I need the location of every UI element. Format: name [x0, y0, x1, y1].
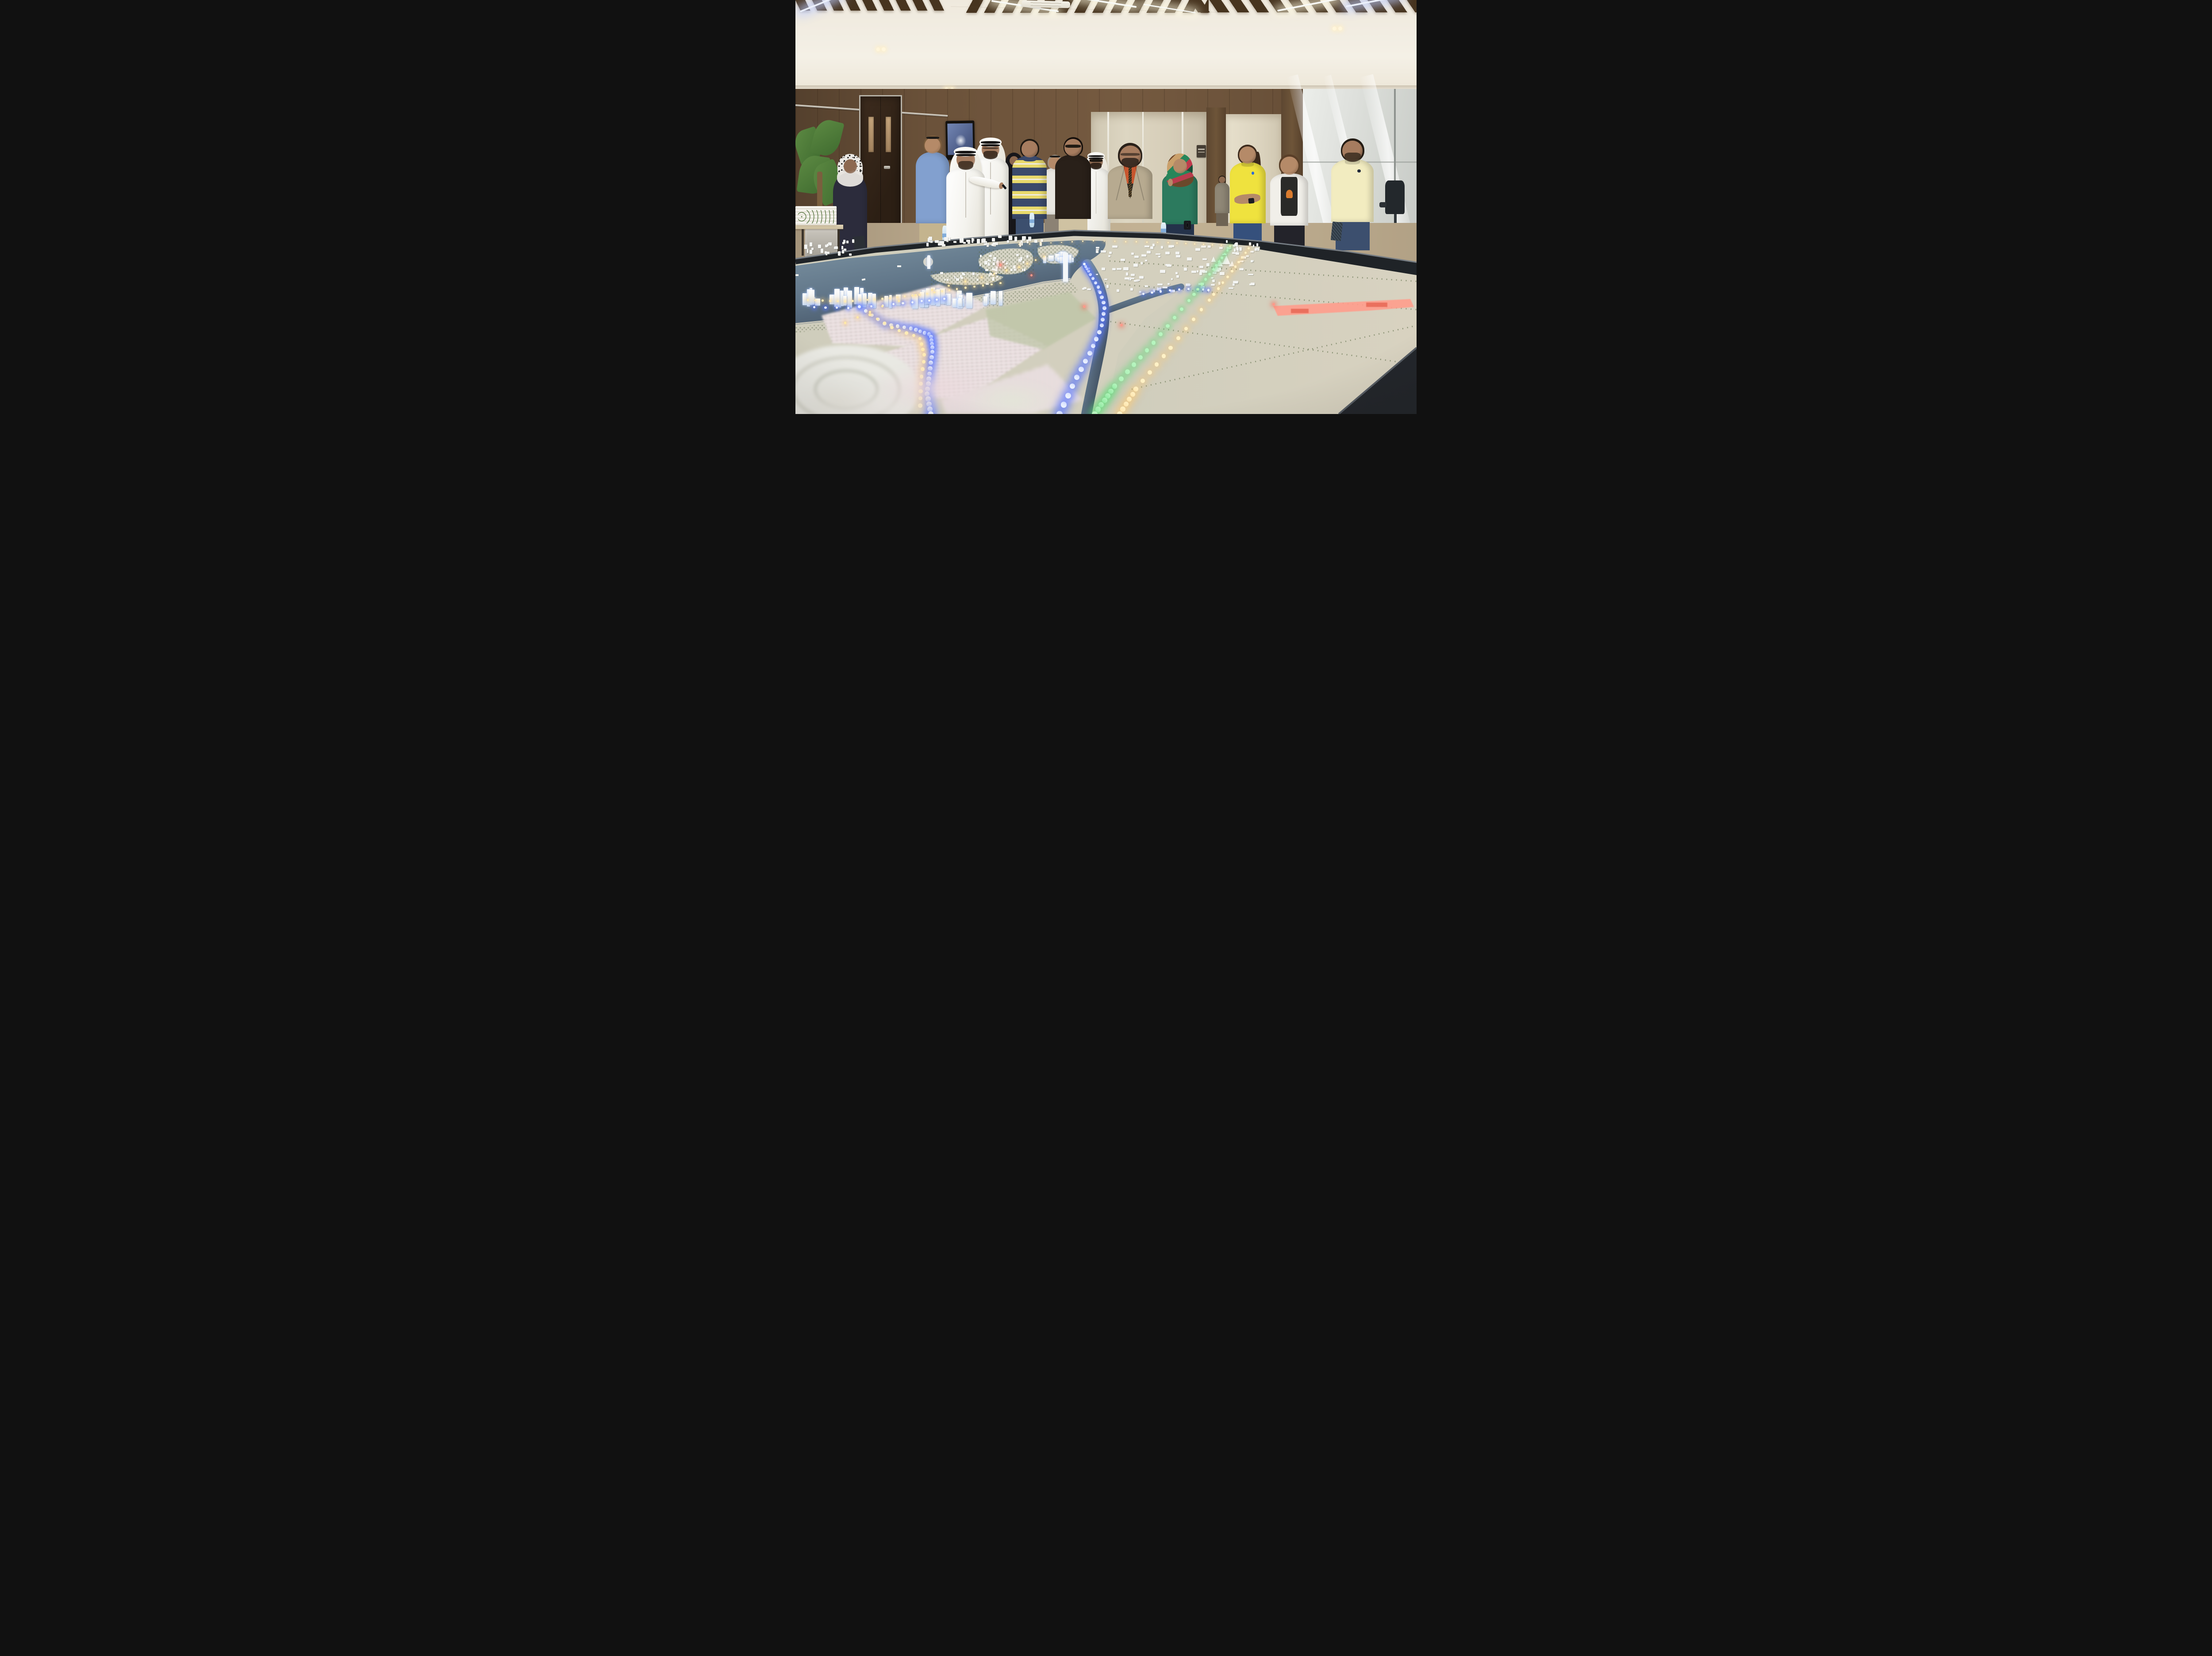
- building-center-island-houses: [993, 268, 994, 270]
- led-road-blue-left: [927, 372, 932, 376]
- led-red-glows: [1030, 274, 1033, 276]
- led-road-blue-left: [926, 381, 931, 386]
- building-central-district: [1128, 277, 1131, 280]
- led-shore-blue: [928, 299, 930, 302]
- led-road-green: [1098, 402, 1104, 407]
- building-waterfront-skyline: [960, 299, 964, 306]
- led-shore-warm: [933, 291, 936, 294]
- led-villa-lights: [856, 316, 859, 318]
- led-canal-blue: [1097, 285, 1100, 289]
- led-road-green: [1138, 355, 1143, 360]
- building-central-district: [1160, 270, 1165, 272]
- building-waterfront-skyline: [959, 295, 963, 307]
- building-crescent-island-houses: [989, 275, 991, 277]
- led-villa-lights: [948, 285, 950, 287]
- building-center-island-houses: [995, 266, 998, 268]
- building-waterfront-skyline: [957, 300, 962, 308]
- model-crescent-island: [930, 272, 1003, 285]
- led-road-blue-left: [928, 366, 932, 371]
- led-road-warm-left: [905, 331, 908, 334]
- showroom-scene: [795, 0, 1417, 414]
- chair-armrest: [1379, 202, 1387, 207]
- building-central-district: [1136, 280, 1141, 281]
- building-central-district: [1104, 279, 1107, 280]
- ceiling: [795, 0, 1417, 95]
- water-bottle: [1161, 222, 1166, 236]
- person-man-black-shirt: [1053, 139, 1093, 246]
- door-split: [880, 96, 881, 232]
- person-man-yellow-polo: [1329, 141, 1376, 250]
- led-villa-lights: [931, 289, 933, 291]
- led-road-blue-left: [925, 391, 929, 396]
- led-shore-blue: [824, 307, 826, 309]
- shirt-torso: [1215, 183, 1229, 213]
- led-road-warm-right: [1124, 402, 1129, 407]
- building-center-island-houses: [1022, 268, 1024, 271]
- building-crescent-island-houses: [995, 272, 997, 274]
- building-waterfront-skyline: [912, 295, 918, 309]
- led-road-warm-right: [1176, 336, 1180, 340]
- building-central-district: [1233, 284, 1235, 286]
- model-crescent-trees: [930, 272, 1003, 285]
- building-central-district: [1201, 286, 1205, 289]
- model-canal-east: [1102, 287, 1181, 312]
- building-central-district: [1229, 264, 1233, 267]
- building-waterfront-skyline: [872, 294, 876, 308]
- led-road-blue-left: [927, 332, 931, 336]
- plant-leaf: [810, 117, 844, 158]
- building-center-island-houses: [987, 264, 991, 266]
- model-villa-district: [941, 364, 1083, 414]
- building-central-district: [1229, 287, 1233, 289]
- building-center-island-houses: [992, 268, 993, 270]
- building-crescent-island-houses: [996, 276, 998, 277]
- led-canal-blue: [1056, 411, 1063, 414]
- face: [1064, 139, 1082, 156]
- led-road-green: [1166, 324, 1170, 328]
- person-man-gray-suit: [1106, 146, 1155, 245]
- led-road-warm-left: [919, 382, 923, 386]
- thobe-placket: [990, 162, 991, 215]
- building-waterfront-skyline: [912, 294, 918, 307]
- led-road-blue-left: [926, 402, 932, 407]
- led-road-warm-left: [918, 403, 922, 408]
- led-road-green: [1102, 398, 1107, 403]
- led-canal-blue: [1098, 291, 1102, 294]
- building-crescent-island-houses: [954, 276, 956, 278]
- shirt-torso: [1055, 155, 1091, 219]
- model-boat: [986, 283, 989, 285]
- building-central-district: [1131, 274, 1135, 276]
- building-waterfront-skyline: [810, 297, 815, 304]
- building-crescent-island-houses: [977, 279, 979, 281]
- building-waterfront-skyline: [952, 299, 959, 307]
- led-road-green: [1108, 389, 1114, 394]
- building-central-district: [1211, 277, 1214, 279]
- building-central-district: [1188, 284, 1190, 286]
- building-central-district: [1233, 281, 1238, 283]
- building-waterfront-skyline: [923, 296, 929, 307]
- bottle-label: [1029, 219, 1034, 223]
- building-center-island-houses: [1010, 268, 1012, 272]
- led-canal-blue: [1061, 402, 1067, 408]
- led-road-blue-left: [930, 342, 934, 346]
- led-road-blue-left: [927, 406, 933, 412]
- led-shore-blue: [936, 299, 938, 301]
- building-waterfront-skyline: [999, 291, 1002, 306]
- building-waterfront-skyline: [940, 288, 945, 304]
- led-road-blue-left: [902, 326, 906, 329]
- building-waterfront-skyline: [922, 290, 928, 304]
- led-shore-warm: [807, 299, 809, 301]
- person-man-striped-polo: [1010, 141, 1049, 246]
- camera: [1184, 221, 1191, 230]
- building-crescent-island-houses: [989, 272, 991, 275]
- building-central-district: [1125, 277, 1129, 280]
- building-central-district: [1139, 291, 1141, 293]
- led-road-warm-right: [1133, 387, 1138, 391]
- building-central-district: [1211, 284, 1215, 286]
- building-central-district: [1117, 289, 1119, 292]
- building-central-district: [1167, 264, 1172, 267]
- agal-band-2: [981, 144, 999, 146]
- model-canal: [1087, 264, 1104, 414]
- building-central-district: [1087, 288, 1091, 290]
- glasses: [983, 147, 998, 149]
- building-central-district: [1096, 274, 1098, 275]
- table-corner-edge: [1339, 348, 1417, 414]
- building-waterfront-skyline: [926, 288, 931, 304]
- led-villa-lights: [981, 276, 983, 278]
- tent-structure: [1214, 264, 1220, 272]
- led-road-warm-left: [921, 367, 924, 371]
- door-window: [868, 117, 874, 152]
- led-road-green: [1196, 288, 1199, 291]
- building-central-district: [1165, 264, 1171, 266]
- led-shore-blue: [943, 298, 945, 300]
- led-road-warm-left: [898, 329, 901, 332]
- led-villa-lights: [964, 280, 966, 282]
- led-road-blue-left: [896, 324, 899, 328]
- led-road-blue-left: [883, 322, 886, 325]
- suit-tie: [1129, 167, 1132, 196]
- led-road-warm-left: [918, 337, 922, 341]
- sunglasses: [1065, 145, 1081, 148]
- building-crescent-island-houses: [992, 278, 995, 281]
- model-desert-tree-lines: [1101, 261, 1417, 389]
- led-metro-blue-east: [1207, 289, 1210, 291]
- building-waterfront-skyline: [983, 296, 987, 306]
- building-crescent-island-houses: [940, 272, 943, 274]
- building-waterfront-skyline: [935, 290, 939, 304]
- led-road-warm-right: [1217, 287, 1220, 290]
- suit-pants: [1112, 219, 1148, 245]
- led-road-green: [1204, 278, 1207, 280]
- led-road-blue-left: [929, 360, 933, 365]
- led-canal-blue: [1083, 359, 1088, 364]
- led-road-blue-left: [923, 331, 927, 335]
- led-road-blue-left: [914, 328, 918, 331]
- led-canal-blue: [1094, 337, 1098, 341]
- building-center-island-houses: [985, 269, 988, 271]
- model-boat: [897, 265, 901, 267]
- led-canal-blue: [1079, 367, 1084, 372]
- building-central-district: [1218, 268, 1221, 271]
- building-central-district: [1171, 278, 1173, 280]
- led-road-green: [1200, 283, 1203, 286]
- glasses: [1121, 153, 1140, 156]
- led-road-blue-left: [929, 335, 933, 339]
- led-canal-blue: [1102, 312, 1106, 316]
- building-central-district: [1218, 282, 1221, 285]
- led-road-blue-left: [929, 338, 933, 342]
- building-central-district: [1184, 268, 1187, 271]
- building-central-district: [1102, 268, 1105, 270]
- chair-back: [1385, 180, 1405, 214]
- building-central-district: [1106, 285, 1108, 288]
- building-waterfront-skyline: [920, 292, 924, 307]
- led-shore-warm: [889, 297, 891, 299]
- led-road-warm-left: [922, 353, 926, 356]
- led-road-warm-right: [1141, 379, 1145, 383]
- tv-screen-glow: [955, 134, 967, 147]
- led-road-blue-left: [889, 323, 893, 327]
- led-road-blue-left: [870, 314, 874, 317]
- led-shore-warm: [999, 282, 1001, 284]
- model-boat: [795, 274, 799, 276]
- foreground-defocus: [795, 348, 1156, 414]
- side-table-leg: [837, 229, 840, 256]
- face: [844, 159, 857, 173]
- building-central-district: [1199, 266, 1203, 268]
- led-shore-warm: [964, 287, 967, 289]
- led-shore-warm: [904, 295, 906, 298]
- model-desert: [1105, 244, 1417, 414]
- led-road-warm-right: [1221, 281, 1224, 284]
- sunglasses-on-head: [926, 137, 939, 139]
- building-center-island-houses: [1024, 268, 1025, 271]
- building-crescent-island-houses: [954, 277, 956, 279]
- building-waterfront-skyline: [889, 295, 892, 308]
- building-central-district: [1213, 272, 1217, 273]
- building-crescent-island-houses: [992, 274, 994, 276]
- model-villa-district: [860, 314, 1050, 405]
- building-waterfront-skyline: [925, 296, 928, 304]
- led-shore-warm: [941, 290, 943, 292]
- led-road-warm-left: [918, 396, 922, 400]
- building-central-district: [1239, 268, 1244, 270]
- building-central-district: [1248, 274, 1253, 276]
- led-road-warm-right: [1162, 354, 1166, 358]
- building-waterfront-skyline: [815, 299, 820, 306]
- led-canal-blue: [1087, 351, 1092, 356]
- building-central-district: [1130, 288, 1133, 291]
- led-road-warm-left: [922, 360, 926, 364]
- led-shore-blue: [813, 306, 815, 308]
- led-canal-blue: [1087, 270, 1090, 273]
- building-waterfront-skyline: [896, 295, 901, 306]
- polo-torso: [1230, 162, 1266, 223]
- led-metro-blue-east: [1197, 288, 1199, 290]
- led-metro-blue-east: [1151, 291, 1153, 294]
- downlight: [882, 47, 886, 51]
- face: [1022, 141, 1038, 157]
- shirt-pants: [1059, 219, 1087, 247]
- building-central-district: [1157, 287, 1161, 291]
- butterfly-print: [1286, 190, 1293, 198]
- led-road-warm-left: [921, 348, 925, 351]
- water-bottle: [1029, 213, 1034, 227]
- building-waterfront-skyline: [807, 289, 810, 306]
- building-central-district: [1202, 271, 1207, 273]
- led-red-glows: [1083, 305, 1086, 308]
- led-road-warm-left: [920, 375, 924, 379]
- led-road-blue-left: [876, 318, 880, 321]
- building-waterfront-skyline: [943, 294, 946, 304]
- led-villa-lights: [914, 294, 917, 296]
- face: [1239, 146, 1256, 164]
- ac-grille: [1030, 2, 1061, 7]
- led-canal-blue: [1065, 393, 1071, 399]
- agal-band: [955, 151, 976, 153]
- building-central-district: [1200, 283, 1204, 285]
- building-central-district: [1197, 270, 1199, 272]
- beard: [1344, 153, 1361, 162]
- building-center-island-houses: [995, 268, 998, 271]
- led-road-green: [1119, 376, 1124, 381]
- face: [1280, 157, 1298, 175]
- building-crescent-island-houses: [977, 274, 979, 276]
- building-central-district: [1123, 267, 1129, 270]
- led-metro-blue-east: [1178, 288, 1180, 291]
- building-waterfront-skyline: [936, 289, 940, 306]
- led-road-warm-right: [1148, 370, 1152, 375]
- led-canal-blue: [1091, 277, 1094, 280]
- led-road-green: [1112, 383, 1117, 388]
- led-canal-blue: [1094, 281, 1097, 284]
- led-canal-blue: [1100, 323, 1104, 328]
- building-crescent-island-houses: [989, 273, 992, 276]
- building-central-district: [1157, 284, 1163, 285]
- building-central-district: [1234, 282, 1237, 284]
- led-road-green: [1187, 299, 1190, 302]
- led-shore-warm: [896, 296, 899, 299]
- door-window: [886, 117, 891, 152]
- led-road-warm-left: [918, 389, 922, 393]
- polo-torso: [1331, 159, 1374, 222]
- led-road-blue-left: [928, 411, 933, 414]
- led-road-green: [1192, 293, 1195, 296]
- building-crescent-island-houses: [992, 277, 994, 280]
- led-canal-blue: [1097, 330, 1102, 334]
- led-road-warm-right: [1234, 265, 1237, 268]
- led-road-green: [1208, 273, 1211, 276]
- led-shore-blue: [870, 305, 872, 307]
- led-red-glows: [1120, 324, 1123, 326]
- led-villa-lights: [1018, 266, 1020, 268]
- building-central-district: [1220, 272, 1225, 275]
- building-central-district: [1139, 276, 1143, 279]
- polo-logo: [1357, 169, 1360, 172]
- led-shore-warm: [982, 284, 984, 287]
- building-central-district: [1186, 284, 1190, 286]
- building-central-district: [1251, 283, 1255, 285]
- led-shore-warm: [814, 299, 817, 302]
- led-road-green: [1125, 369, 1130, 374]
- tablet: [853, 235, 866, 249]
- building-central-district: [1083, 287, 1087, 290]
- downlight: [1333, 27, 1336, 31]
- led-shore-warm: [911, 295, 914, 297]
- building-waterfront-skyline: [810, 288, 812, 306]
- led-road-warm-right: [1192, 318, 1195, 321]
- led-road-green: [1159, 332, 1163, 336]
- building-central-district: [1131, 278, 1134, 279]
- led-road-warm-right: [1127, 397, 1132, 402]
- building-central-district: [1144, 285, 1148, 287]
- led-road-warm-right: [1130, 392, 1135, 397]
- table-corner-frame: [1339, 348, 1417, 414]
- building-central-district: [1170, 290, 1175, 292]
- person-woman-green-hijab: [1160, 157, 1200, 248]
- led-canal-blue: [1084, 265, 1087, 268]
- building-waterfront-skyline: [884, 296, 888, 307]
- led-road-green: [1180, 307, 1183, 311]
- led-villa-lights: [844, 322, 846, 324]
- led-road-blue-left: [909, 326, 913, 330]
- building-crescent-island-houses: [962, 272, 964, 275]
- led-road-green: [1173, 316, 1176, 319]
- building-waterfront-skyline: [958, 298, 962, 307]
- led-canal-blue: [1102, 301, 1105, 304]
- led-shore-blue: [892, 303, 895, 305]
- building-center-island-houses: [1004, 266, 1006, 269]
- building-central-district: [1153, 289, 1155, 292]
- led-shore-warm: [949, 289, 951, 291]
- building-waterfront-skyline: [991, 291, 996, 305]
- building-central-district: [1198, 283, 1202, 285]
- led-shore-blue: [911, 301, 914, 303]
- building-waterfront-skyline: [966, 293, 972, 308]
- led-metro-blue-east: [1160, 290, 1162, 292]
- camera-lens: [1186, 222, 1189, 228]
- led-canal-blue: [1070, 383, 1075, 389]
- building-central-district: [1191, 271, 1196, 273]
- building-central-district: [1134, 280, 1139, 282]
- led-road-green: [1095, 406, 1101, 412]
- agal-band-2: [956, 154, 975, 156]
- building-central-district: [1199, 272, 1202, 275]
- phone: [1248, 198, 1254, 204]
- led-road-warm-right: [1231, 270, 1233, 272]
- led-shore-warm: [991, 284, 992, 285]
- building-central-district: [1117, 268, 1122, 270]
- led-road-green: [1212, 268, 1215, 271]
- meeting-room-sign: [1197, 145, 1206, 157]
- led-road-warm-left: [912, 334, 915, 337]
- side-table-leg: [802, 229, 804, 256]
- building-waterfront-skyline: [924, 294, 928, 307]
- model-red-industrial-strip: [1273, 299, 1414, 316]
- building-crescent-island-houses: [992, 277, 995, 280]
- building-central-district: [1159, 287, 1161, 289]
- led-metro-blue-east: [1142, 293, 1144, 295]
- model-trees: [798, 210, 834, 223]
- small-architectural-model: [795, 206, 837, 225]
- door-handle: [884, 166, 891, 169]
- building-waterfront-skyline: [985, 294, 989, 304]
- building-crescent-island-houses: [961, 277, 963, 279]
